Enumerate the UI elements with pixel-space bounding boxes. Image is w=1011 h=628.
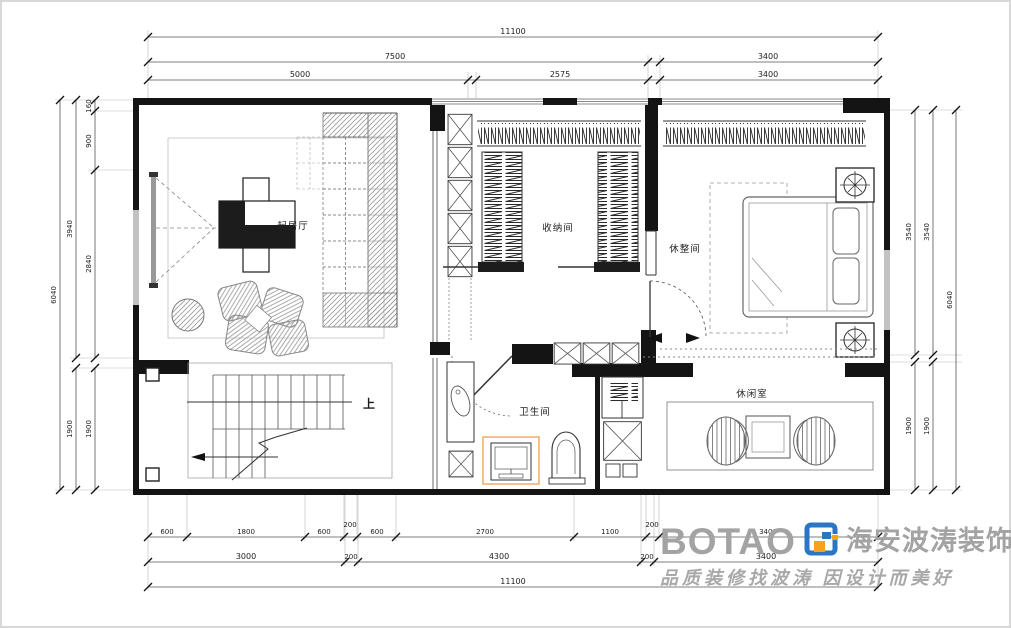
storage-room: 收纳间 xyxy=(443,114,641,340)
pillow xyxy=(833,208,859,254)
dim-label: 1900 xyxy=(905,417,913,435)
floor-cushions xyxy=(216,280,309,357)
brand-logo-text: BOTAO xyxy=(660,523,796,560)
dim-label: 600 xyxy=(160,528,173,536)
dim-label: 200 xyxy=(343,521,356,529)
room-label-rest: 休整间 xyxy=(669,243,701,255)
dim-label: 600 xyxy=(317,528,330,536)
dim-label: 5000 xyxy=(290,70,310,79)
utility-cabinet xyxy=(602,377,643,477)
right-dimensions: 3540 1900 3540 1900 6040 xyxy=(905,223,954,435)
bathroom: 卫生间 xyxy=(447,343,643,484)
dim-label: 200 xyxy=(640,553,653,561)
room-label-bath: 卫生间 xyxy=(519,406,551,418)
dim-label: 1100 xyxy=(601,528,619,536)
dim-label: 3540 xyxy=(923,223,931,241)
stairs-up-label: 上 xyxy=(363,396,375,411)
step-grid xyxy=(297,113,397,327)
staircase: 上 xyxy=(146,363,392,481)
dim-label: 7500 xyxy=(385,52,405,61)
stool xyxy=(172,299,204,331)
room-label-living: 起居厅 xyxy=(277,221,309,232)
watermark: BOTAO 海安波涛装饰 品质装修找波涛 因设计而美好 xyxy=(660,522,1010,590)
brand-name: 海安波涛装饰 xyxy=(846,528,1011,555)
dim-label: 6040 xyxy=(946,291,954,309)
sink-vanity xyxy=(483,437,539,484)
dim-label: 160 xyxy=(85,99,93,112)
dim-label: 600 xyxy=(370,528,383,536)
dim-label: 200 xyxy=(645,521,658,529)
leisure-room: 休闲室 xyxy=(667,388,873,470)
dim-label: 3400 xyxy=(758,52,778,61)
closet-rack xyxy=(482,152,522,262)
dim-label: 3540 xyxy=(905,223,913,241)
brand-slogan: 品质装修找波涛 因设计而美好 xyxy=(660,564,1010,590)
dim-label: 1900 xyxy=(85,420,93,438)
closet-rod xyxy=(478,123,640,144)
closet-rod xyxy=(664,123,865,144)
dim-label: 1900 xyxy=(66,420,74,438)
chair xyxy=(707,417,745,465)
chair xyxy=(797,417,835,465)
dim-label: 6040 xyxy=(50,286,58,304)
screen xyxy=(151,176,156,284)
floorplan-page: 11100 7500 3400 5000 2575 3400 600 1800 … xyxy=(0,0,1011,628)
dim-label: 4300 xyxy=(489,552,509,561)
dim-label: 1800 xyxy=(237,528,255,536)
ceiling-fixture xyxy=(836,323,874,357)
botao-logo-icon xyxy=(802,522,840,560)
dim-label: 2575 xyxy=(550,70,570,79)
dim-label: 3400 xyxy=(758,70,778,79)
toilet xyxy=(549,432,585,484)
dim-label: 200 xyxy=(344,553,357,561)
closet-rack xyxy=(598,152,638,262)
ceiling-fixture xyxy=(836,168,874,202)
dim-label: 900 xyxy=(85,134,93,147)
bed xyxy=(743,197,873,317)
dim-label: 2700 xyxy=(476,528,494,536)
dim-label: 3940 xyxy=(66,220,74,238)
room-label-leisure: 休闲室 xyxy=(736,388,768,400)
top-dimensions: 11100 7500 3400 5000 2575 3400 xyxy=(290,27,778,79)
pillow xyxy=(833,258,859,304)
dim-label: 2840 xyxy=(85,255,93,273)
room-label-storage: 收纳间 xyxy=(542,222,574,234)
dim-label: 1900 xyxy=(923,417,931,435)
living-room: 起居厅 xyxy=(149,113,397,357)
dim-label: 3000 xyxy=(236,552,256,561)
basin-cabinet xyxy=(447,362,474,442)
dim-label: 11100 xyxy=(500,577,525,586)
door-swing xyxy=(650,281,706,337)
left-dimensions: 160 900 2840 1900 3940 1900 6040 xyxy=(50,99,93,438)
dim-label: 11100 xyxy=(500,27,525,36)
rest-room: 休整间 xyxy=(643,121,878,357)
